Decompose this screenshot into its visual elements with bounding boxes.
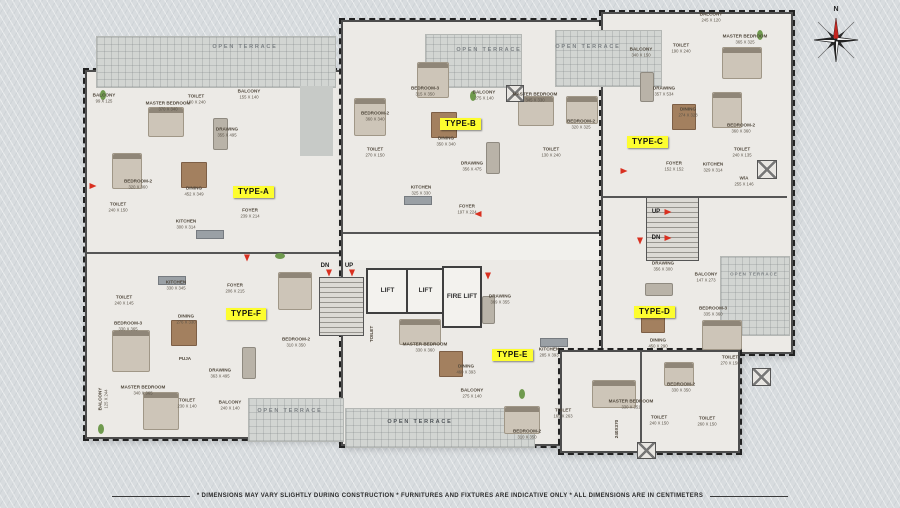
room-dims: 370 X 340 xyxy=(146,106,191,111)
room-name: MASTER BEDROOM xyxy=(146,101,191,107)
room-label: BALCONY125 X 244 xyxy=(98,388,109,411)
room-name: BALCONY xyxy=(473,90,496,96)
room-label: BEDROOM-2330 X 350 xyxy=(667,382,695,393)
room-dims: 240 X 135 xyxy=(732,152,751,157)
room-label: DINING452 X 349 xyxy=(184,186,203,197)
fire-lift-box: FIRE LIFT xyxy=(442,266,482,328)
room-name: TOILET xyxy=(541,147,560,153)
corridor xyxy=(343,234,599,260)
room-dims: 152 X 152 xyxy=(664,166,683,171)
room-label: TOILET165 X 263 xyxy=(553,408,572,419)
entry-arrow-down xyxy=(244,255,250,262)
open-terrace-bottom-left xyxy=(248,398,344,442)
room-label: BALCONY99 X 125 xyxy=(93,93,116,104)
room-dims: 130 X 240 xyxy=(186,99,205,104)
room-name: BALCONY xyxy=(630,47,653,53)
room-dims: 255 X 146 xyxy=(734,181,753,186)
room-dims: 274 X 328 xyxy=(678,112,697,117)
room-label: TOILET130 X 240 xyxy=(186,94,205,105)
room-name: BEDROOM-2 xyxy=(727,123,755,129)
room-dims: 239 X 214 xyxy=(240,213,259,218)
room-label: BEDROOM-2310 X 350 xyxy=(513,429,541,440)
room-label: BEDROOM-2320 X 360 xyxy=(124,179,152,190)
room-dims: 320 X 360 xyxy=(124,184,152,189)
room-name: BALCONY xyxy=(98,388,104,411)
lift-box: LIFT xyxy=(406,268,445,314)
room-dims: 356 X 300 xyxy=(652,266,674,271)
bed-icon xyxy=(112,330,150,372)
entry-arrow-right xyxy=(665,209,672,215)
room-name: BEDROOM-3 xyxy=(114,321,142,327)
table-icon xyxy=(181,162,207,188)
room-name: DRAWING xyxy=(652,261,674,267)
room-dims: 369 X 355 xyxy=(489,299,511,304)
service-shaft xyxy=(757,160,777,179)
room-dims: 125 X 244 xyxy=(103,388,108,411)
room-label: DINING460 X 393 xyxy=(456,364,475,375)
room-label: BALCONY155 X 140 xyxy=(238,89,261,100)
room-name: BEDROOM-3 xyxy=(699,306,727,312)
room-dims: 325 X 330 xyxy=(411,190,431,195)
unit-type-tag: TYPE-A xyxy=(233,186,274,198)
room-dims: 260 X 150 xyxy=(697,421,716,426)
room-label: DRAWING363 X 495 xyxy=(209,368,231,379)
lift-box: LIFT xyxy=(366,268,409,314)
room-label: MASTER BEDROOM330 X 360 xyxy=(403,342,448,353)
room-label: BEDROOM-3335 X 360 xyxy=(699,306,727,317)
room-dims: 329 X 314 xyxy=(703,167,723,172)
bed-headboard xyxy=(113,331,149,336)
bed-headboard xyxy=(355,99,385,104)
room-label: W/A255 X 146 xyxy=(734,176,753,187)
room-label: BEDROOM-2360 X 360 xyxy=(727,123,755,134)
room-dims: 365 X 325 xyxy=(723,39,768,44)
room-label: PUJA xyxy=(179,356,191,362)
entry-arrow-down xyxy=(485,273,491,280)
counter-icon xyxy=(404,196,432,205)
room-label: FOYER152 X 152 xyxy=(664,161,683,172)
room-label: DINING350 X 340 xyxy=(436,136,455,147)
room-dims: 245 X 120 xyxy=(700,17,723,22)
room-name: DINING xyxy=(456,364,475,370)
sofa-icon xyxy=(486,142,500,174)
room-name: KITCHEN xyxy=(411,185,431,191)
room-name: BEDROOM-2 xyxy=(124,179,152,185)
room-label: TOILET270 X 150 xyxy=(365,147,384,158)
room-label: TOILET270 X 150 xyxy=(720,355,739,366)
service-shaft xyxy=(752,368,771,386)
room-dims: 450 X 290 xyxy=(648,343,667,348)
bed-headboard xyxy=(113,154,141,159)
room-dims: 206 X 215 xyxy=(225,288,244,293)
room-dims: 350 X 340 xyxy=(436,141,455,146)
room-label: BEDROOM-2320 X 325 xyxy=(567,119,595,130)
stair-direction-label: DN xyxy=(321,263,330,269)
disclaimer-bar: * DIMENSIONS MAY VARY SLIGHTLY DURING CO… xyxy=(0,493,900,499)
room-label: MASTER BEDROOM330 X 351 xyxy=(609,399,654,410)
room-name: BEDROOM-2 xyxy=(361,111,389,117)
bed-headboard xyxy=(665,363,693,368)
room-name: DRAWING xyxy=(216,127,238,133)
open-terrace-label: OPEN TERRACE xyxy=(456,47,521,53)
room-name: MASTER BEDROOM xyxy=(723,34,768,40)
terrace-walkway xyxy=(300,86,333,156)
room-dims: 320 X 325 xyxy=(567,124,595,129)
counter-icon xyxy=(196,230,224,239)
room-label: TOILET130 X 240 xyxy=(541,147,560,158)
room-label: DRAWING369 X 355 xyxy=(489,294,511,305)
unit-type-tag: TYPE-B xyxy=(440,118,481,130)
stair-direction-label: DN xyxy=(652,235,661,241)
room-dims: 330 X 351 xyxy=(609,404,654,409)
room-label: TOILET xyxy=(369,326,375,342)
room-name: DRAWING xyxy=(653,86,675,92)
room-name: FOYER xyxy=(457,204,476,210)
room-name: TOILET xyxy=(553,408,572,414)
wall-divider xyxy=(343,232,599,234)
room-dims: 275 X 140 xyxy=(473,95,496,100)
bed-headboard xyxy=(703,321,741,326)
open-terrace-label: OPEN TERRACE xyxy=(212,44,277,50)
bed-headboard xyxy=(279,273,311,278)
disclaimer-dash-left xyxy=(112,496,190,497)
room-name: TOILET xyxy=(186,94,205,100)
room-label: DRAWING355 X 495 xyxy=(216,127,238,138)
room-name: TOILET xyxy=(365,147,384,153)
room-name: BEDROOM-2 xyxy=(282,337,310,343)
room-dims: 240 X 150 xyxy=(108,207,127,212)
open-terrace-label: OPEN TERRACE xyxy=(555,44,620,50)
room-name: MASTER BEDROOM xyxy=(121,385,166,391)
room-dims: 330 X 365 xyxy=(114,326,142,331)
room-name: 240X370 xyxy=(614,420,620,438)
room-dims: 99 X 125 xyxy=(93,98,116,103)
room-dims: 356 X 475 xyxy=(461,166,483,171)
room-name: DINING xyxy=(436,136,455,142)
room-dims: 357 X 534 xyxy=(653,91,675,96)
room-name: DRAWING xyxy=(489,294,511,300)
open-terrace-label: OPEN TERRACE xyxy=(730,272,778,277)
room-name: DINING xyxy=(678,107,697,113)
room-label: BEDROOM-3330 X 365 xyxy=(114,321,142,332)
room-label: KITCHEN329 X 314 xyxy=(703,162,723,173)
room-dims: 155 X 140 xyxy=(238,94,261,99)
room-dims: 300 X 314 xyxy=(176,224,196,229)
plant-icon xyxy=(275,253,285,259)
room-name: TOILET xyxy=(108,202,127,208)
room-label: TOILET240 X 150 xyxy=(108,202,127,213)
entry-arrow-left xyxy=(475,211,482,217)
room-dims: 270 X 150 xyxy=(365,152,384,157)
room-name: BALCONY xyxy=(93,93,116,99)
room-dims: 363 X 495 xyxy=(209,373,231,378)
room-dims: 330 X 360 xyxy=(403,347,448,352)
room-dims: 310 X 350 xyxy=(282,342,310,347)
room-label: KITCHEN330 X 345 xyxy=(166,280,186,291)
room-label: TOILET230 X 140 xyxy=(177,398,196,409)
room-dims: 452 X 349 xyxy=(184,191,203,196)
room-name: BALCONY xyxy=(238,89,261,95)
room-dims: 130 X 240 xyxy=(541,152,560,157)
room-dims: 360 X 360 xyxy=(727,128,755,133)
bed-headboard xyxy=(713,93,741,98)
room-label: DRAWING356 X 300 xyxy=(652,261,674,272)
open-terrace-label: OPEN TERRACE xyxy=(257,408,322,414)
plant-icon xyxy=(519,389,525,399)
bed-icon xyxy=(278,272,312,310)
room-dims: 147 X 273 xyxy=(695,277,718,282)
room-dims: 240 X 145 xyxy=(114,300,133,305)
room-dims: 275 X 140 xyxy=(461,393,484,398)
service-shaft xyxy=(637,442,656,459)
unit-type-tag: TYPE-C xyxy=(627,136,668,148)
room-dims: 270 X 150 xyxy=(720,360,739,365)
room-label: BALCONY245 X 120 xyxy=(700,12,723,23)
entry-arrow-down xyxy=(349,270,355,277)
room-label: TOILET240 X 135 xyxy=(732,147,751,158)
sofa-icon xyxy=(640,72,654,102)
room-dims: 355 X 495 xyxy=(216,132,238,137)
room-dims: 165 X 263 xyxy=(553,413,572,418)
room-name: TOILET xyxy=(114,295,133,301)
room-dims: 345 X 330 xyxy=(513,97,558,102)
room-label: TOILET240 X 150 xyxy=(649,415,668,426)
room-dims: 330 X 345 xyxy=(166,285,186,290)
room-label: KITCHEN300 X 314 xyxy=(176,219,196,230)
room-name: BALCONY xyxy=(219,400,242,406)
room-label: KITCHEN285 X 393 xyxy=(539,347,559,358)
room-label: FOYER206 X 215 xyxy=(225,283,244,294)
room-label: BALCONY147 X 273 xyxy=(695,272,718,283)
room-name: MASTER BEDROOM xyxy=(403,342,448,348)
staircase xyxy=(646,197,699,261)
entry-arrow-down xyxy=(326,270,332,277)
wall-divider xyxy=(87,252,339,254)
bed-icon xyxy=(722,47,762,79)
plant-icon xyxy=(98,424,104,434)
entry-arrow-right xyxy=(621,168,628,174)
room-name: PUJA xyxy=(179,356,191,362)
open-terrace-label: OPEN TERRACE xyxy=(387,419,452,425)
room-label: KITCHEN325 X 330 xyxy=(411,185,431,196)
room-name: TOILET xyxy=(177,398,196,404)
room-label: DINING274 X 328 xyxy=(678,107,697,118)
room-label: BALCONY275 X 140 xyxy=(473,90,496,101)
room-name: FOYER xyxy=(225,283,244,289)
room-name: MASTER BEDROOM xyxy=(609,399,654,405)
room-dims: 360 X 340 xyxy=(361,116,389,121)
room-label: TOILET260 X 150 xyxy=(697,416,716,427)
room-dims: 230 X 140 xyxy=(177,403,196,408)
room-label: FOYER239 X 214 xyxy=(240,208,259,219)
room-label: BEDROOM-3315 X 350 xyxy=(411,86,439,97)
disclaimer-text: * DIMENSIONS MAY VARY SLIGHTLY DURING CO… xyxy=(197,493,703,499)
room-dims: 315 X 350 xyxy=(411,91,439,96)
room-label: DINING450 X 290 xyxy=(648,338,667,349)
sofa-icon xyxy=(645,283,673,296)
room-dims: 340 X 365 xyxy=(121,390,166,395)
room-name: TOILET xyxy=(671,43,690,49)
unit-type-tag: TYPE-F xyxy=(226,308,266,320)
room-name: BALCONY xyxy=(700,12,723,18)
room-name: KITCHEN xyxy=(176,219,196,225)
room-label: BEDROOM-2310 X 350 xyxy=(282,337,310,348)
compass-north-label: N xyxy=(833,6,838,13)
bed-headboard xyxy=(400,320,440,325)
room-name: BEDROOM-2 xyxy=(567,119,595,125)
bed-headboard xyxy=(567,97,597,102)
room-label: BALCONY240 X 140 xyxy=(219,400,242,411)
stair-direction-label: UP xyxy=(652,209,660,215)
room-label: TOILET240 X 145 xyxy=(114,295,133,306)
room-name: DRAWING xyxy=(461,161,483,167)
room-label: 240X370 xyxy=(614,420,620,438)
room-label: MASTER BEDROOM345 X 330 xyxy=(513,92,558,103)
room-dims: 330 X 350 xyxy=(667,387,695,392)
room-name: MASTER BEDROOM xyxy=(513,92,558,98)
room-label: BALCONY275 X 140 xyxy=(461,388,484,399)
room-name: BEDROOM-3 xyxy=(411,86,439,92)
room-name: BEDROOM-2 xyxy=(513,429,541,435)
unit-type-tag: TYPE-D xyxy=(634,306,675,318)
room-dims: 460 X 393 xyxy=(456,369,475,374)
sofa-icon xyxy=(242,347,256,379)
room-name: TOILET xyxy=(732,147,751,153)
disclaimer-dash-right xyxy=(710,496,788,497)
room-name: TOILET xyxy=(697,416,716,422)
room-label: BEDROOM-2360 X 340 xyxy=(361,111,389,122)
room-name: TOILET xyxy=(720,355,739,361)
room-label: MASTER BEDROOM365 X 325 xyxy=(723,34,768,45)
stair-direction-label: UP xyxy=(345,263,353,269)
room-label: TOILET190 X 240 xyxy=(671,43,690,54)
room-label: DINING276 X 330 xyxy=(176,314,195,325)
room-dims: 240 X 140 xyxy=(219,405,242,410)
room-dims: 335 X 360 xyxy=(699,311,727,316)
room-label: MASTER BEDROOM370 X 340 xyxy=(146,101,191,112)
room-dims: 310 X 350 xyxy=(513,434,541,439)
room-dims: 240 X 150 xyxy=(649,420,668,425)
bed-headboard xyxy=(723,48,761,53)
bed-headboard xyxy=(505,407,539,412)
room-label: BALCONY340 X 150 xyxy=(630,47,653,58)
floor-plan: N * DIMENSIONS MAY VARY SLIGHTLY DURING … xyxy=(0,0,900,508)
room-dims: 190 X 240 xyxy=(671,48,690,53)
room-name: DRAWING xyxy=(209,368,231,374)
room-name: DINING xyxy=(184,186,203,192)
room-label: DRAWING356 X 475 xyxy=(461,161,483,172)
staircase xyxy=(319,277,364,336)
bed-icon xyxy=(702,320,742,350)
compass-icon xyxy=(812,16,860,64)
room-name: BALCONY xyxy=(695,272,718,278)
entry-arrow-down xyxy=(637,238,643,245)
bed-headboard xyxy=(593,381,635,386)
room-name: DINING xyxy=(176,314,195,320)
room-name: BEDROOM-2 xyxy=(667,382,695,388)
room-name: KITCHEN xyxy=(703,162,723,168)
bed-icon xyxy=(148,107,184,137)
entry-arrow-right xyxy=(665,235,672,241)
entry-arrow-right xyxy=(90,183,97,189)
room-dims: 340 X 150 xyxy=(630,52,653,57)
room-name: BALCONY xyxy=(461,388,484,394)
room-dims: 285 X 393 xyxy=(539,352,559,357)
bed-icon xyxy=(143,392,179,430)
room-name: KITCHEN xyxy=(166,280,186,286)
unit-type-tag: TYPE-E xyxy=(492,349,533,361)
room-name: FOYER xyxy=(664,161,683,167)
room-name: TOILET xyxy=(369,326,375,342)
bed-headboard xyxy=(418,63,448,68)
room-name: TOILET xyxy=(649,415,668,421)
room-dims: 276 X 330 xyxy=(176,319,195,324)
room-name: DINING xyxy=(648,338,667,344)
room-label: DRAWING357 X 534 xyxy=(653,86,675,97)
room-label: MASTER BEDROOM340 X 365 xyxy=(121,385,166,396)
room-name: FOYER xyxy=(240,208,259,214)
room-name: KITCHEN xyxy=(539,347,559,353)
